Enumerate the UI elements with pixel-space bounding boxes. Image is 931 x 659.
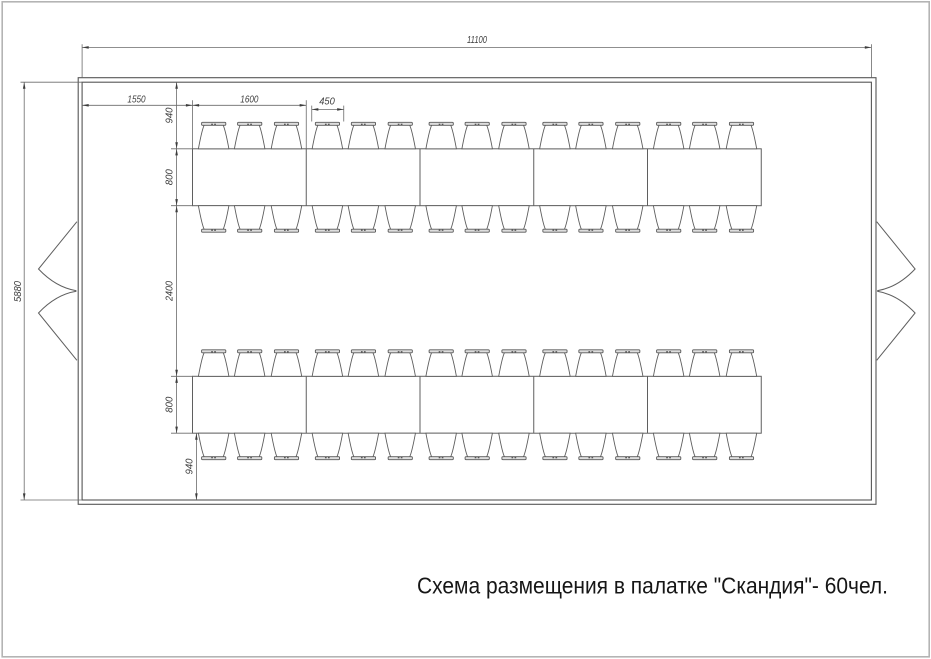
svg-text:1600: 1600 — [240, 93, 258, 105]
svg-text:940: 940 — [184, 458, 196, 474]
svg-text:800: 800 — [164, 397, 176, 413]
svg-text:450: 450 — [319, 96, 335, 108]
svg-text:800: 800 — [164, 169, 176, 185]
svg-text:2400: 2400 — [164, 281, 176, 302]
svg-text:Схема размещения в палатке "Ск: Схема размещения в палатке "Скандия"- 60… — [417, 573, 888, 599]
svg-text:1550: 1550 — [127, 93, 145, 105]
svg-text:5880: 5880 — [12, 281, 24, 302]
svg-text:940: 940 — [164, 107, 176, 123]
svg-text:11100: 11100 — [467, 34, 487, 46]
